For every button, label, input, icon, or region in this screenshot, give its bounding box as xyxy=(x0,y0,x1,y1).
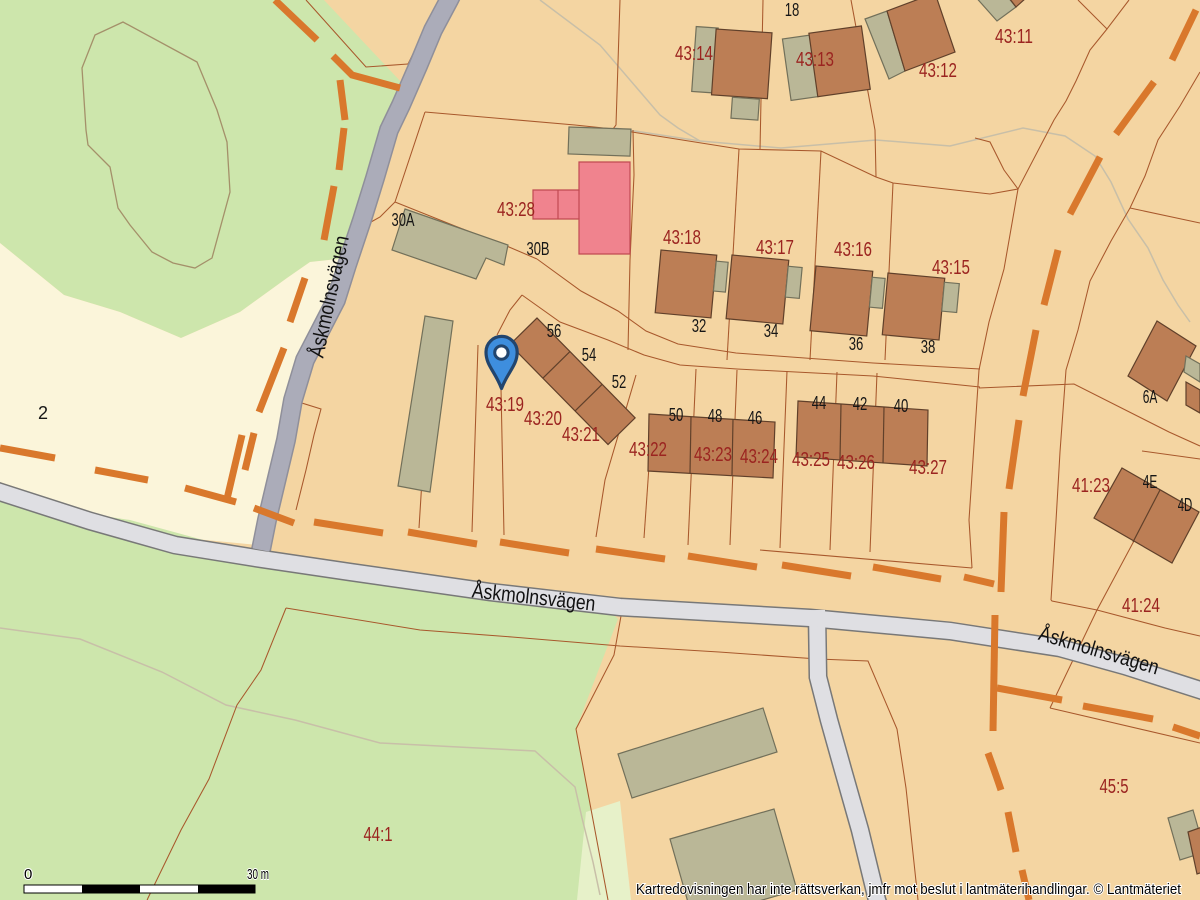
svg-text:45:5: 45:5 xyxy=(1100,775,1129,798)
svg-text:43:26: 43:26 xyxy=(837,451,875,474)
svg-text:48: 48 xyxy=(708,406,723,426)
svg-text:18: 18 xyxy=(785,0,800,20)
svg-text:43:17: 43:17 xyxy=(756,236,794,259)
svg-text:46: 46 xyxy=(748,408,763,428)
svg-text:43:23: 43:23 xyxy=(694,443,732,466)
svg-text:38: 38 xyxy=(921,337,936,357)
svg-text:43:13: 43:13 xyxy=(796,48,834,71)
svg-text:41:23: 41:23 xyxy=(1072,474,1110,497)
svg-text:43:16: 43:16 xyxy=(834,238,872,261)
svg-text:44:1: 44:1 xyxy=(364,823,393,846)
svg-text:4E: 4E xyxy=(1143,472,1158,492)
svg-text:44: 44 xyxy=(812,393,827,413)
svg-text:30A: 30A xyxy=(392,210,415,230)
svg-text:36: 36 xyxy=(849,334,864,354)
svg-text:54: 54 xyxy=(582,345,597,365)
svg-text:30B: 30B xyxy=(527,239,550,259)
svg-text:Kartredovisningen har inte rät: Kartredovisningen har inte rättsverkan, … xyxy=(636,882,1181,898)
svg-text:43:14: 43:14 xyxy=(675,42,713,65)
svg-text:34: 34 xyxy=(764,321,779,341)
svg-text:43:28: 43:28 xyxy=(497,198,535,221)
svg-text:43:22: 43:22 xyxy=(629,438,667,461)
svg-text:43:11: 43:11 xyxy=(995,25,1033,48)
svg-text:4D: 4D xyxy=(1178,495,1193,515)
svg-text:32: 32 xyxy=(692,316,707,336)
svg-text:42: 42 xyxy=(853,394,868,414)
svg-text:43:12: 43:12 xyxy=(919,59,957,82)
svg-text:41:24: 41:24 xyxy=(1122,594,1160,617)
svg-text:40: 40 xyxy=(894,396,909,416)
svg-text:43:25: 43:25 xyxy=(792,448,830,471)
svg-text:0: 0 xyxy=(24,866,32,883)
svg-text:43:24: 43:24 xyxy=(740,445,778,468)
svg-text:2: 2 xyxy=(38,403,48,423)
svg-text:56: 56 xyxy=(547,321,562,341)
svg-text:43:15: 43:15 xyxy=(932,256,970,279)
svg-text:43:19: 43:19 xyxy=(486,393,524,416)
svg-text:43:18: 43:18 xyxy=(663,226,701,249)
svg-text:43:21: 43:21 xyxy=(562,423,600,446)
svg-text:43:20: 43:20 xyxy=(524,407,562,430)
svg-text:30 m: 30 m xyxy=(247,866,269,883)
svg-text:50: 50 xyxy=(669,405,684,425)
svg-text:43:27: 43:27 xyxy=(909,456,947,479)
svg-text:52: 52 xyxy=(612,372,627,392)
svg-text:6A: 6A xyxy=(1143,387,1158,407)
